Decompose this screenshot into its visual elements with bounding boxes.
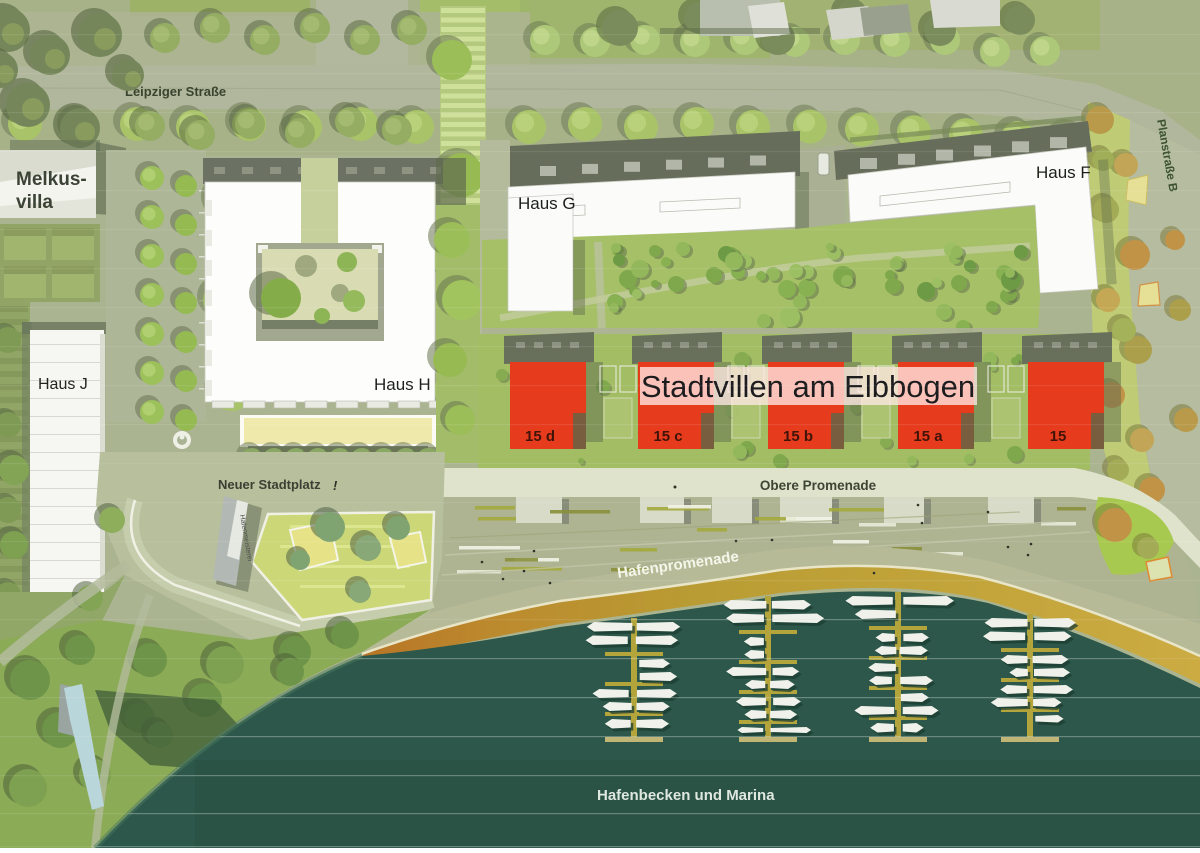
svg-text:15 b: 15 b [783, 428, 813, 445]
svg-text:Melkus-: Melkus- [16, 169, 87, 190]
svg-text:15 d: 15 d [525, 428, 555, 445]
svg-text:Obere Promenade: Obere Promenade [760, 478, 877, 493]
svg-text:Haus J: Haus J [38, 376, 88, 393]
svg-text:Haus H: Haus H [374, 375, 431, 394]
svg-text:!: ! [333, 478, 338, 493]
svg-text:Hafenbecken und Marina: Hafenbecken und Marina [597, 787, 775, 804]
svg-text:15 c: 15 c [653, 428, 682, 445]
svg-text:15: 15 [1050, 428, 1067, 445]
svg-text:Neuer Stadtplatz: Neuer Stadtplatz [218, 477, 321, 492]
svg-text:Haus F: Haus F [1036, 163, 1091, 182]
svg-text:Leipziger Straße: Leipziger Straße [125, 84, 226, 99]
svg-text:Haus G: Haus G [518, 194, 576, 213]
svg-text:Stadtvillen am Elbbogen: Stadtvillen am Elbbogen [641, 369, 975, 404]
svg-text:villa: villa [16, 192, 53, 213]
svg-text:15 a: 15 a [913, 428, 943, 445]
